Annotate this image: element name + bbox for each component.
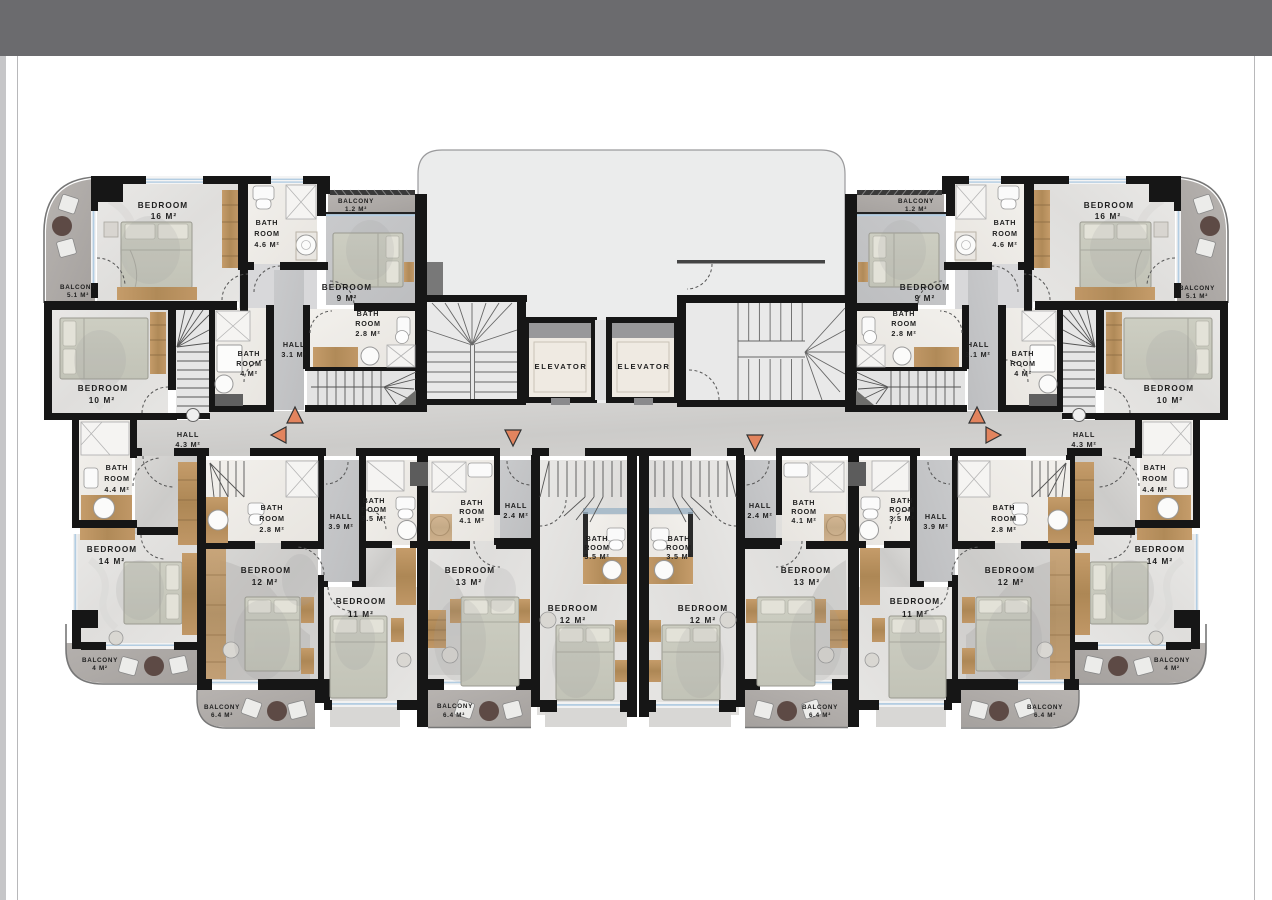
svg-text:2.4 M²: 2.4 M² — [503, 511, 528, 520]
svg-text:BATH: BATH — [261, 503, 284, 512]
svg-text:BEDROOM: BEDROOM — [1135, 545, 1185, 554]
svg-text:BATH: BATH — [1012, 349, 1035, 358]
svg-text:10 M²: 10 M² — [89, 396, 115, 405]
svg-text:14 M²: 14 M² — [1147, 557, 1173, 566]
svg-text:HALL: HALL — [967, 340, 989, 349]
svg-text:BEDROOM: BEDROOM — [985, 566, 1035, 575]
svg-text:5.1 M²: 5.1 M² — [67, 292, 89, 299]
svg-text:3.1 M²: 3.1 M² — [281, 350, 306, 359]
svg-text:BATH: BATH — [1144, 463, 1167, 472]
svg-text:BALCONY: BALCONY — [204, 704, 240, 711]
svg-text:BATH: BATH — [586, 534, 609, 543]
svg-text:ROOM: ROOM — [666, 543, 692, 552]
svg-text:4.4 M²: 4.4 M² — [1142, 485, 1167, 494]
svg-text:2.8 M²: 2.8 M² — [891, 329, 916, 338]
svg-text:12 M²: 12 M² — [252, 578, 278, 587]
svg-text:BATH: BATH — [993, 503, 1016, 512]
svg-text:13 M²: 13 M² — [456, 578, 482, 587]
svg-text:1.2 M²: 1.2 M² — [905, 206, 927, 213]
svg-text:ROOM: ROOM — [791, 507, 817, 516]
svg-text:11 M²: 11 M² — [902, 610, 928, 619]
svg-text:4.6 M²: 4.6 M² — [992, 240, 1017, 249]
svg-text:ROOM: ROOM — [889, 505, 915, 514]
svg-text:5.1 M²: 5.1 M² — [1186, 293, 1208, 300]
svg-text:BALCONY: BALCONY — [60, 284, 96, 291]
svg-text:BATH: BATH — [357, 309, 380, 318]
svg-text:9 M²: 9 M² — [337, 294, 358, 303]
svg-text:ROOM: ROOM — [1010, 359, 1036, 368]
svg-text:16 M²: 16 M² — [1095, 212, 1121, 221]
svg-text:BEDROOM: BEDROOM — [548, 604, 598, 613]
svg-text:BEDROOM: BEDROOM — [336, 597, 386, 606]
svg-text:HALL: HALL — [1073, 430, 1095, 439]
svg-text:BATH: BATH — [238, 349, 261, 358]
svg-text:2.4 M²: 2.4 M² — [747, 511, 772, 520]
svg-text:3.5 M²: 3.5 M² — [889, 514, 914, 523]
svg-text:BALCONY: BALCONY — [898, 198, 934, 205]
svg-text:3.5 M²: 3.5 M² — [584, 552, 609, 561]
svg-text:ELEVATOR: ELEVATOR — [618, 362, 671, 371]
svg-text:BEDROOM: BEDROOM — [87, 545, 137, 554]
svg-text:BALCONY: BALCONY — [802, 704, 838, 711]
svg-text:2.8 M²: 2.8 M² — [355, 329, 380, 338]
svg-text:6.4 M²: 6.4 M² — [443, 712, 465, 719]
svg-text:BEDROOM: BEDROOM — [1144, 384, 1194, 393]
svg-text:BATH: BATH — [106, 463, 129, 472]
svg-text:4 M²: 4 M² — [1014, 369, 1032, 378]
svg-text:BATH: BATH — [461, 498, 484, 507]
svg-text:ROOM: ROOM — [355, 319, 381, 328]
svg-text:3.9 M²: 3.9 M² — [923, 522, 948, 531]
svg-text:BATH: BATH — [994, 218, 1017, 227]
svg-text:4 M²: 4 M² — [1164, 665, 1179, 672]
svg-text:11 M²: 11 M² — [348, 610, 374, 619]
svg-text:BATH: BATH — [891, 496, 914, 505]
svg-text:ROOM: ROOM — [991, 514, 1017, 523]
svg-text:3.5 M²: 3.5 M² — [666, 552, 691, 561]
svg-text:BEDROOM: BEDROOM — [900, 283, 950, 292]
svg-text:ROOM: ROOM — [1142, 474, 1168, 483]
svg-text:BEDROOM: BEDROOM — [445, 566, 495, 575]
svg-text:ROOM: ROOM — [584, 543, 610, 552]
svg-text:BALCONY: BALCONY — [338, 198, 374, 205]
svg-text:4.4 M²: 4.4 M² — [104, 485, 129, 494]
svg-text:ELEVATOR: ELEVATOR — [535, 362, 588, 371]
svg-text:BEDROOM: BEDROOM — [241, 566, 291, 575]
svg-text:4 M²: 4 M² — [240, 369, 258, 378]
svg-text:14 M²: 14 M² — [99, 557, 125, 566]
svg-text:BALCONY: BALCONY — [437, 703, 473, 710]
svg-text:BATH: BATH — [256, 218, 279, 227]
svg-text:12 M²: 12 M² — [690, 616, 716, 625]
svg-text:6.4 M²: 6.4 M² — [211, 712, 233, 719]
svg-text:HALL: HALL — [330, 512, 352, 521]
svg-text:HALL: HALL — [749, 501, 771, 510]
svg-text:6.4 M²: 6.4 M² — [1034, 712, 1056, 719]
svg-text:ROOM: ROOM — [104, 474, 130, 483]
svg-text:4.1 M²: 4.1 M² — [791, 516, 816, 525]
svg-text:BEDROOM: BEDROOM — [138, 201, 188, 210]
svg-text:BEDROOM: BEDROOM — [322, 283, 372, 292]
svg-text:HALL: HALL — [505, 501, 527, 510]
svg-text:ROOM: ROOM — [361, 505, 387, 514]
svg-text:10 M²: 10 M² — [1157, 396, 1183, 405]
svg-text:BEDROOM: BEDROOM — [1084, 201, 1134, 210]
svg-text:BALCONY: BALCONY — [1154, 657, 1190, 664]
svg-text:4 M²: 4 M² — [92, 665, 107, 672]
svg-text:4.3 M²: 4.3 M² — [1071, 440, 1096, 449]
svg-text:12 M²: 12 M² — [560, 616, 586, 625]
svg-text:ROOM: ROOM — [891, 319, 917, 328]
svg-text:12 M²: 12 M² — [998, 578, 1024, 587]
svg-text:4.6 M²: 4.6 M² — [254, 240, 279, 249]
svg-text:BATH: BATH — [793, 498, 816, 507]
svg-text:ROOM: ROOM — [254, 229, 280, 238]
svg-text:ROOM: ROOM — [259, 514, 285, 523]
svg-text:BATH: BATH — [668, 534, 691, 543]
svg-text:13 M²: 13 M² — [794, 578, 820, 587]
svg-text:3.1 M²: 3.1 M² — [965, 350, 990, 359]
svg-text:BEDROOM: BEDROOM — [890, 597, 940, 606]
svg-text:16 M²: 16 M² — [151, 212, 177, 221]
svg-text:4.1 M²: 4.1 M² — [459, 516, 484, 525]
svg-text:3.9 M²: 3.9 M² — [328, 522, 353, 531]
svg-text:2.8 M²: 2.8 M² — [991, 525, 1016, 534]
svg-text:HALL: HALL — [283, 340, 305, 349]
svg-text:BEDROOM: BEDROOM — [78, 384, 128, 393]
svg-text:2.8 M²: 2.8 M² — [259, 525, 284, 534]
svg-text:BALCONY: BALCONY — [1179, 285, 1215, 292]
svg-text:HALL: HALL — [177, 430, 199, 439]
svg-text:HALL: HALL — [925, 512, 947, 521]
svg-text:3.5 M²: 3.5 M² — [361, 514, 386, 523]
svg-text:ROOM: ROOM — [459, 507, 485, 516]
svg-text:ROOM: ROOM — [992, 229, 1018, 238]
svg-text:1.2 M²: 1.2 M² — [345, 206, 367, 213]
svg-text:BALCONY: BALCONY — [82, 657, 118, 664]
svg-text:BEDROOM: BEDROOM — [678, 604, 728, 613]
svg-text:9 M²: 9 M² — [915, 294, 936, 303]
svg-text:BATH: BATH — [893, 309, 916, 318]
svg-text:ROOM: ROOM — [236, 359, 262, 368]
svg-text:BALCONY: BALCONY — [1027, 704, 1063, 711]
svg-text:6.4 M²: 6.4 M² — [809, 712, 831, 719]
svg-text:4.3 M²: 4.3 M² — [175, 440, 200, 449]
svg-text:BATH: BATH — [363, 496, 386, 505]
svg-text:BEDROOM: BEDROOM — [781, 566, 831, 575]
